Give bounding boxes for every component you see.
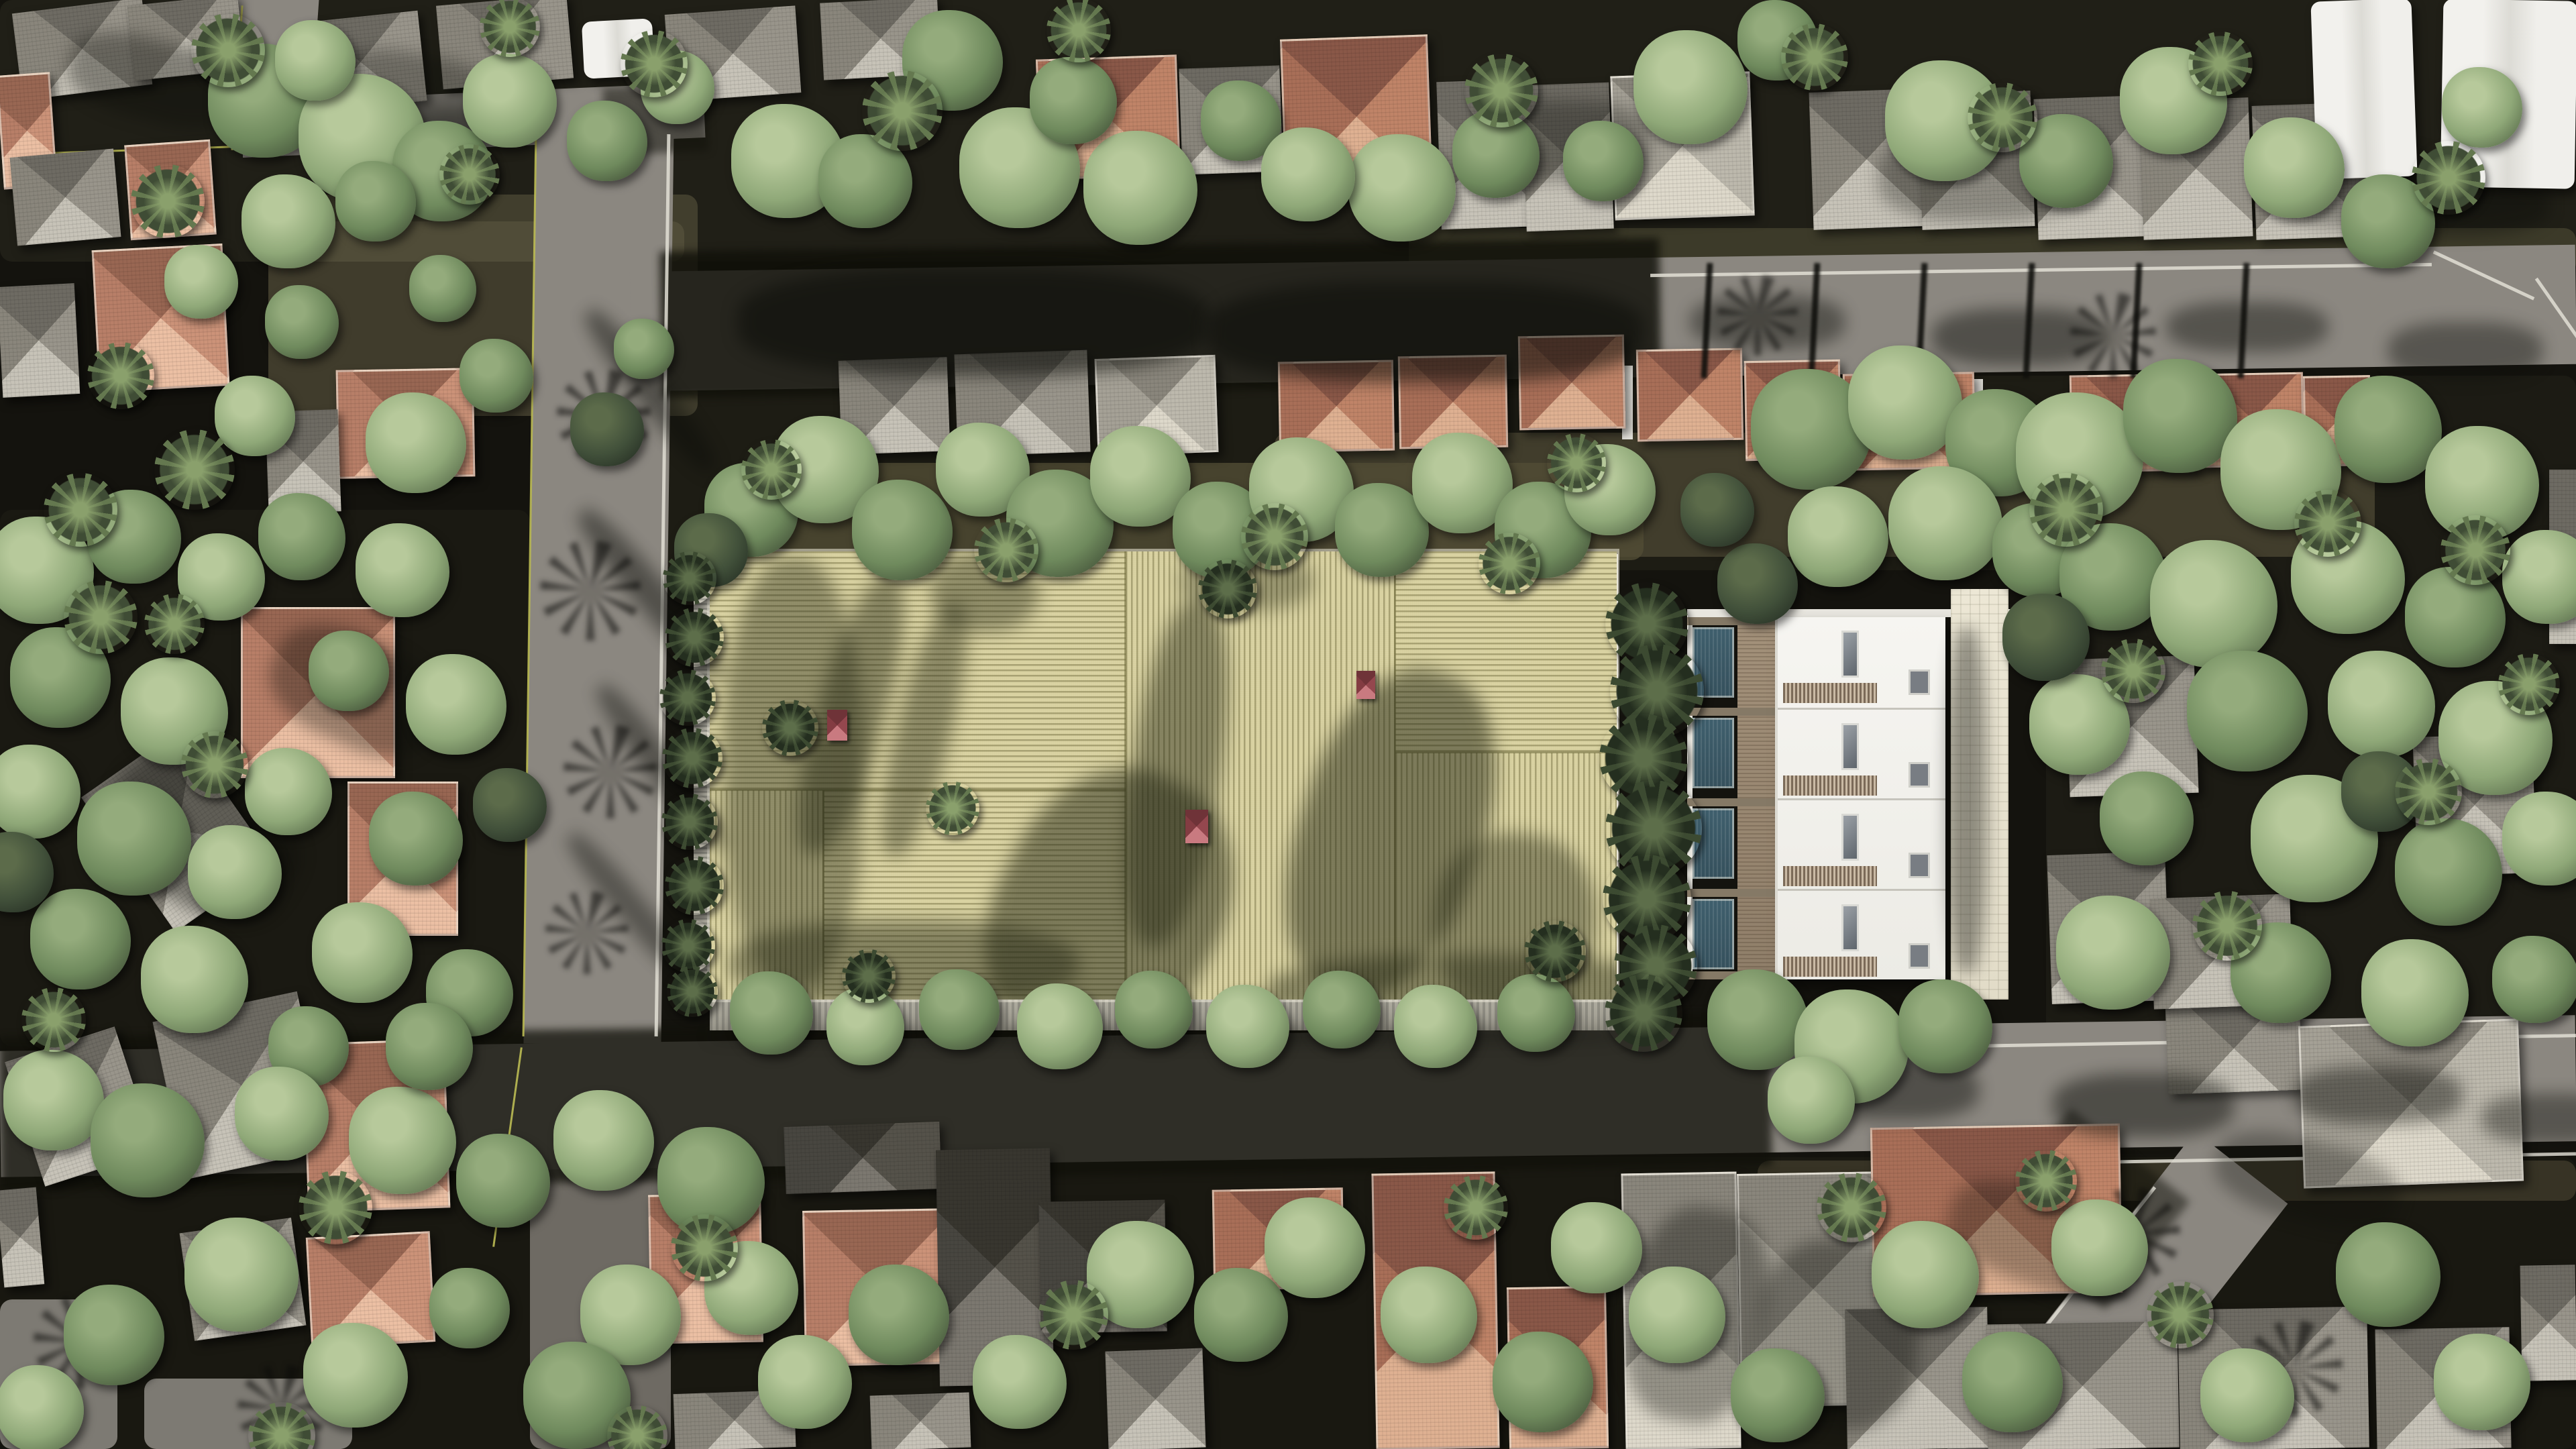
cast-shadow (1207, 282, 1644, 382)
deck-divider (1687, 889, 1778, 897)
tree-canopy (1030, 57, 1117, 144)
rice-field (710, 551, 1617, 1000)
deck-divider (1687, 798, 1778, 806)
palm-tree (1038, 1280, 1108, 1350)
skylight-window (1841, 631, 1859, 678)
tree-canopy (1261, 127, 1355, 221)
tree-canopy (460, 339, 533, 413)
palm-tree (1046, 0, 1111, 62)
tree-canopy (265, 285, 339, 359)
cast-shadow (2482, 1093, 2576, 1144)
side-window (1909, 943, 1930, 969)
tree-canopy (1717, 543, 1798, 624)
tree-canopy (141, 926, 248, 1033)
palm-tree (144, 594, 205, 654)
tree-canopy (758, 1335, 852, 1429)
tree-canopy (1194, 1268, 1288, 1362)
field-shrine (1356, 671, 1375, 699)
palm-tree (762, 700, 818, 756)
house-roof (1105, 1348, 1205, 1449)
palm-tree (621, 30, 688, 97)
palm-tree (87, 342, 154, 409)
tree-canopy (275, 20, 356, 101)
palm-tree (2395, 758, 2462, 825)
tree-canopy (409, 255, 476, 322)
tree-canopy (2395, 818, 2502, 926)
villa-unit (1778, 708, 1945, 798)
villa-building (1778, 617, 1945, 979)
tree-canopy (567, 101, 647, 181)
palm-shadow (540, 540, 641, 641)
tree-canopy (852, 480, 953, 580)
tree-canopy (215, 376, 295, 456)
palm-tree (662, 728, 722, 788)
house-roof (10, 148, 121, 246)
palm-tree (2101, 639, 2165, 703)
palm-tree (191, 13, 265, 87)
palm-tree (299, 1171, 372, 1244)
skylight-window (1841, 904, 1859, 951)
villa-unit (1778, 798, 1945, 889)
tree-canopy (3, 1050, 104, 1150)
tree-canopy (2336, 1222, 2440, 1327)
tree-canopy (184, 1218, 299, 1332)
villa-unit (1778, 889, 1945, 979)
tree-canopy (2244, 117, 2345, 218)
villa-unit (1778, 617, 1945, 708)
palm-shadow (2070, 292, 2156, 378)
cast-shadow (2167, 302, 2328, 352)
palm-tree (667, 966, 718, 1017)
house-roof (1636, 348, 1743, 442)
palm-tree (44, 473, 117, 547)
tree-canopy (406, 654, 506, 755)
skylight-window (1841, 723, 1859, 770)
tree-canopy (919, 969, 1000, 1050)
tree-canopy (356, 523, 449, 617)
tree-canopy (456, 1134, 550, 1228)
tree-canopy (2405, 567, 2506, 667)
tree-canopy (91, 1083, 205, 1197)
palm-tree (663, 551, 716, 605)
tree-canopy (429, 1268, 510, 1348)
palm-tree (974, 518, 1038, 582)
tree-canopy (1381, 1267, 1477, 1363)
tree-canopy (2051, 1199, 2148, 1296)
tree-canopy (730, 971, 813, 1055)
palm-tree (1198, 559, 1257, 619)
tree-canopy (1563, 121, 1644, 201)
tree-canopy (614, 319, 674, 379)
tree-canopy (241, 174, 335, 268)
tree-canopy (1348, 134, 1456, 241)
tree-canopy (463, 54, 557, 148)
skylight-window (1841, 814, 1859, 861)
tree-canopy (335, 161, 416, 241)
tree-canopy (570, 392, 644, 466)
pergola-slats (1783, 866, 1877, 886)
tree-canopy (2002, 594, 2090, 681)
palm-tree (439, 144, 500, 205)
field-shrine (1185, 810, 1208, 843)
palm-tree (2188, 32, 2253, 96)
palm-tree (661, 794, 718, 850)
tree-canopy (2442, 67, 2522, 148)
tree-canopy (1265, 1197, 1365, 1298)
palm-shadow (1717, 275, 1798, 356)
palm-tree (842, 949, 896, 1003)
tree-canopy (1768, 1057, 1855, 1144)
pergola-slats (1783, 775, 1877, 796)
tree-canopy (1206, 985, 1289, 1068)
cast-shadow (2053, 1073, 2234, 1137)
palm-tree (1524, 920, 1586, 982)
house-roof (784, 1122, 941, 1194)
tree-canopy (369, 792, 463, 885)
side-window (1909, 669, 1930, 695)
tree-canopy (1872, 1221, 1979, 1328)
cast-shadow (1947, 627, 1987, 973)
tree-canopy (2056, 896, 2170, 1010)
side-window (1909, 762, 1930, 788)
tree-canopy (2434, 1334, 2530, 1430)
tree-canopy (2502, 792, 2576, 885)
tree-canopy (2492, 936, 2576, 1023)
pool (1693, 718, 1734, 788)
tree-canopy (245, 748, 332, 835)
cast-shadow (738, 268, 1207, 376)
palm-tree (21, 987, 86, 1052)
palm-tree (2412, 141, 2485, 215)
palm-tree (1547, 433, 1606, 492)
palm-tree (1241, 503, 1308, 570)
palm-tree (659, 669, 716, 726)
pergola-slats (1783, 683, 1877, 703)
tree-canopy (1962, 1332, 2063, 1432)
tree-canopy (1493, 1332, 1593, 1432)
tree-canopy (973, 1335, 1067, 1429)
pool (1693, 899, 1734, 969)
tree-canopy (349, 1087, 456, 1194)
tree-canopy (553, 1090, 654, 1191)
palm-tree (131, 164, 205, 238)
tree-canopy (2361, 939, 2469, 1046)
palm-tree (2015, 1150, 2077, 1212)
house-roof (870, 1392, 971, 1449)
tree-canopy (235, 1067, 329, 1161)
palm-tree (181, 731, 248, 798)
tree-canopy (1017, 983, 1103, 1069)
tree-canopy (1394, 985, 1477, 1068)
tree-canopy (1633, 30, 1748, 144)
tree-canopy (2100, 771, 2194, 865)
tree-canopy (64, 1285, 164, 1385)
tree-canopy (303, 1323, 408, 1428)
tree-canopy (1707, 969, 1808, 1070)
tree-canopy (366, 392, 466, 493)
tree-canopy (1551, 1202, 1642, 1293)
palm-tree (661, 919, 715, 973)
palm-tree (926, 782, 979, 835)
cast-shadow (2294, 1067, 2462, 1124)
pergola-slats (1783, 957, 1877, 977)
palm-tree (671, 1214, 738, 1281)
palm-tree (1479, 533, 1540, 594)
tree-canopy (2187, 651, 2308, 771)
tree-canopy (1731, 1348, 1825, 1442)
palm-tree (2294, 490, 2361, 557)
palm-tree (1781, 23, 1848, 91)
side-window (1909, 853, 1930, 878)
tree-canopy (2200, 1348, 2294, 1442)
palm-tree (1817, 1173, 1886, 1242)
tree-canopy (473, 768, 547, 842)
tree-canopy (1898, 979, 1992, 1073)
tree-canopy (164, 245, 238, 319)
house-roof (2520, 1265, 2576, 1381)
tree-canopy (2150, 540, 2277, 667)
tree-canopy (77, 782, 191, 896)
palm-tree (862, 70, 943, 151)
palm-tree (741, 439, 802, 500)
field-shrine (827, 710, 847, 741)
tree-canopy (1303, 971, 1381, 1049)
palm-tree (154, 429, 235, 510)
palm-shadow (545, 891, 629, 974)
cast-shadow (2388, 322, 2542, 379)
palm-tree (1464, 54, 1538, 127)
palm-tree (2029, 473, 2103, 547)
tree-canopy (1115, 971, 1193, 1049)
tree-canopy (2502, 530, 2576, 624)
tree-canopy (1788, 486, 1888, 587)
tree-canopy (188, 825, 282, 919)
tree-canopy (312, 902, 413, 1003)
tree-canopy (1629, 1267, 1725, 1363)
palm-tree (64, 580, 138, 654)
tree-canopy (309, 631, 389, 711)
tree-canopy (2123, 359, 2237, 473)
palm-tree (2440, 515, 2510, 585)
tree-canopy (30, 889, 131, 989)
tree-canopy (1888, 466, 2002, 580)
palm-tree (2498, 653, 2560, 715)
tree-canopy (849, 1265, 949, 1365)
palm-tree (2147, 1281, 2214, 1348)
palm-tree (2192, 891, 2262, 961)
tree-canopy (1497, 974, 1575, 1052)
tree-canopy (2328, 651, 2435, 758)
tree-canopy (258, 493, 345, 580)
palm-shadow (563, 724, 657, 818)
tree-canopy (1083, 131, 1197, 245)
tree-canopy (386, 1003, 473, 1090)
tree-canopy (1680, 473, 1754, 547)
palm-tree (1968, 83, 2037, 152)
palm-tree (1605, 974, 1682, 1052)
palm-tree (1444, 1175, 1508, 1240)
palm-tree (665, 608, 724, 667)
deck-divider (1687, 708, 1778, 716)
palm-tree (665, 856, 724, 915)
house-roof (0, 283, 80, 398)
aerial-render-stage (0, 0, 2576, 1449)
